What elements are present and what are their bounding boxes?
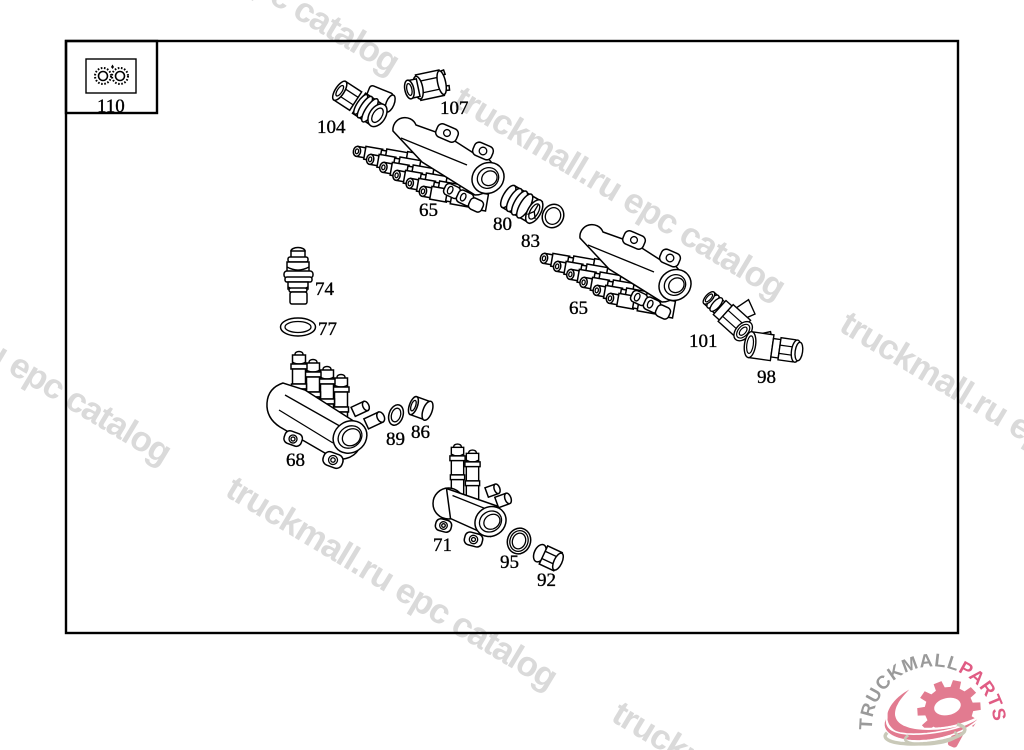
svg-text:65: 65 <box>419 200 438 221</box>
svg-text:92: 92 <box>537 570 556 591</box>
svg-text:truckmall.ru epc catalog: truckmall.ru epc catalog <box>0 243 178 471</box>
svg-text:101: 101 <box>689 331 718 352</box>
svg-text:86: 86 <box>411 422 430 443</box>
svg-text:95: 95 <box>500 552 519 573</box>
svg-text:80: 80 <box>493 214 512 235</box>
svg-text:104: 104 <box>317 117 346 138</box>
svg-text:65: 65 <box>569 298 588 319</box>
svg-text:107: 107 <box>440 98 469 119</box>
svg-text:98: 98 <box>757 367 776 388</box>
svg-text:110: 110 <box>97 96 125 117</box>
svg-text:68: 68 <box>286 450 305 471</box>
svg-text:83: 83 <box>521 231 540 252</box>
svg-text:77: 77 <box>318 319 337 340</box>
svg-text:truckmall.ru epc catalog: truckmall.ru epc catalog <box>219 468 564 696</box>
svg-text:74: 74 <box>315 279 335 300</box>
svg-text:truckmall.ru epc catalog: truckmall.ru epc catalog <box>833 303 1024 531</box>
svg-text:89: 89 <box>386 429 405 450</box>
svg-text:71: 71 <box>433 535 452 556</box>
